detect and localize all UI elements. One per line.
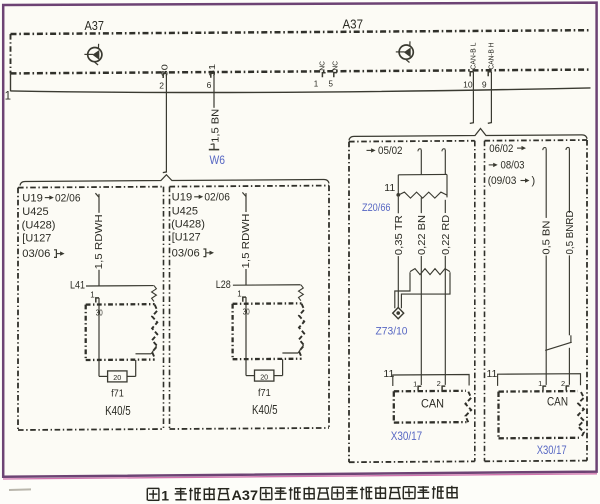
svg-text:2: 2 [437, 379, 441, 388]
svg-text:Z73/10: Z73/10 [376, 325, 408, 337]
svg-text:08/03: 08/03 [501, 160, 525, 172]
svg-text:1: 1 [237, 290, 242, 299]
svg-text:NC: NC [319, 61, 326, 71]
svg-text:f71: f71 [111, 388, 124, 400]
svg-text:11: 11 [486, 368, 497, 380]
svg-text:02/06: 02/06 [204, 192, 230, 204]
svg-text:X30/17: X30/17 [537, 443, 567, 457]
svg-text:(U428): (U428) [171, 219, 205, 231]
svg-text:A37: A37 [343, 18, 364, 32]
svg-text:0,35 TR: 0,35 TR [394, 215, 405, 255]
svg-text:[U127: [U127 [172, 232, 201, 244]
svg-text:1,5 RDWH: 1,5 RDWH [94, 214, 105, 269]
svg-text:30: 30 [96, 308, 103, 318]
svg-text:(U428): (U428) [22, 220, 56, 232]
svg-text:11: 11 [384, 182, 395, 194]
svg-text:20: 20 [113, 373, 121, 382]
svg-text:1,5 RDWH: 1,5 RDWH [241, 213, 252, 268]
svg-text:A37: A37 [85, 19, 105, 33]
svg-text:1: 1 [413, 379, 417, 388]
svg-text:CAN-B H: CAN-B H [486, 43, 495, 70]
svg-text:06/02: 06/02 [489, 143, 513, 155]
svg-text:K40/5: K40/5 [252, 403, 278, 417]
svg-text:9: 9 [482, 79, 487, 89]
svg-text:U425: U425 [172, 205, 198, 217]
svg-text:CAN-B L: CAN-B L [468, 43, 477, 70]
svg-text:X30/17: X30/17 [391, 429, 423, 443]
svg-text:30: 30 [243, 307, 250, 317]
svg-text:20: 20 [260, 372, 268, 381]
svg-text:L28: L28 [216, 279, 231, 291]
svg-text:05/02: 05/02 [378, 145, 403, 157]
svg-text:CAN: CAN [547, 394, 568, 408]
svg-text:03/06: 03/06 [22, 248, 50, 260]
svg-text:5: 5 [328, 79, 333, 88]
svg-text:1: 1 [5, 91, 11, 103]
svg-text:10: 10 [463, 79, 473, 89]
svg-text:U19: U19 [22, 192, 43, 204]
svg-text:(09/03: (09/03 [488, 175, 517, 187]
svg-text:L41: L41 [70, 280, 85, 292]
svg-text:Z20/66: Z20/66 [362, 202, 391, 214]
svg-text:CAN: CAN [421, 397, 444, 411]
svg-text:1: 1 [161, 488, 169, 504]
svg-text:03/06: 03/06 [172, 247, 200, 259]
svg-text:1: 1 [538, 379, 542, 388]
svg-text:A37: A37 [232, 487, 259, 503]
svg-text:0,22 RD: 0,22 RD [441, 215, 452, 255]
svg-text:02/06: 02/06 [55, 192, 81, 204]
svg-text:0,5 BN: 0,5 BN [542, 221, 553, 255]
svg-text:W6: W6 [210, 153, 226, 167]
svg-text:31: 31 [208, 63, 217, 76]
svg-text:6: 6 [207, 80, 212, 90]
svg-text:2: 2 [561, 379, 565, 388]
svg-text:1: 1 [90, 290, 95, 299]
svg-text:f71: f71 [258, 387, 271, 399]
svg-text:): ) [532, 175, 536, 187]
svg-text:U19: U19 [172, 192, 193, 204]
svg-text:U425: U425 [22, 206, 48, 218]
svg-text:0,5 BNRD: 0,5 BNRD [565, 211, 576, 255]
svg-text:2: 2 [159, 80, 164, 90]
svg-text:0,22 BN: 0,22 BN [417, 215, 428, 255]
svg-text:30: 30 [161, 63, 170, 76]
svg-text:NC: NC [333, 61, 340, 71]
svg-text:1,5 BN: 1,5 BN [210, 109, 221, 143]
svg-text:[U127: [U127 [22, 233, 51, 245]
svg-text:1: 1 [314, 79, 319, 88]
svg-text:K40/5: K40/5 [105, 404, 131, 418]
